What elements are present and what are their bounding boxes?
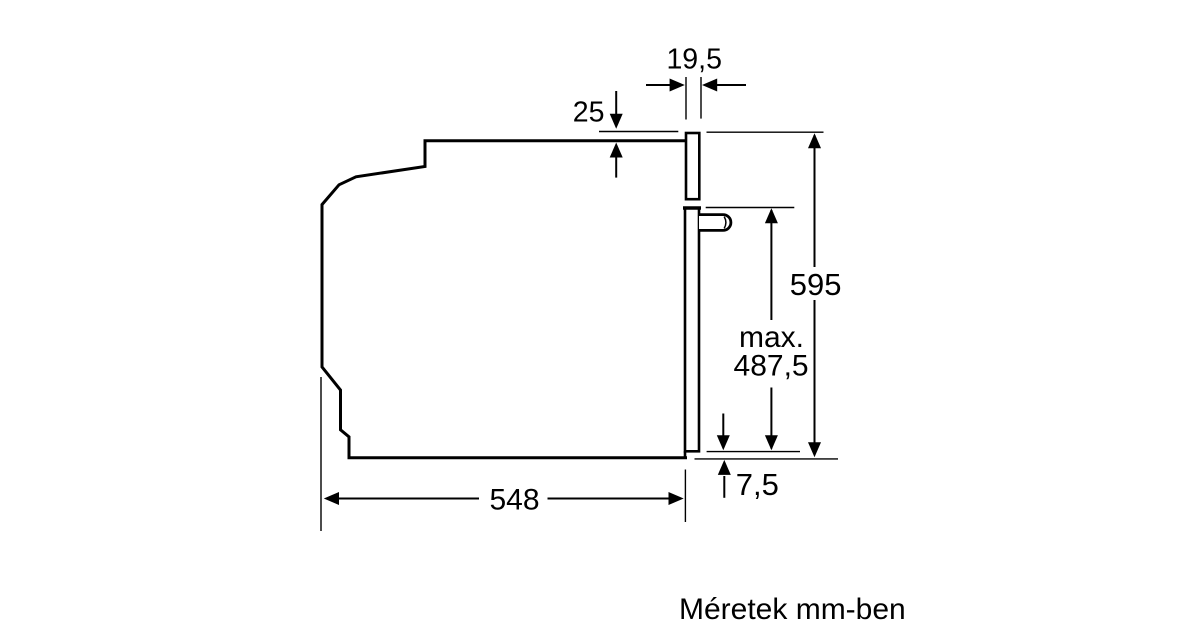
svg-text:25: 25 (573, 97, 605, 129)
svg-text:595: 595 (790, 267, 842, 302)
svg-text:548: 548 (489, 484, 539, 517)
svg-text:7,5: 7,5 (736, 467, 779, 502)
svg-text:487,5: 487,5 (734, 350, 809, 383)
svg-text:19,5: 19,5 (666, 44, 721, 76)
svg-text:Méretek mm-ben: Méretek mm-ben (679, 593, 906, 626)
